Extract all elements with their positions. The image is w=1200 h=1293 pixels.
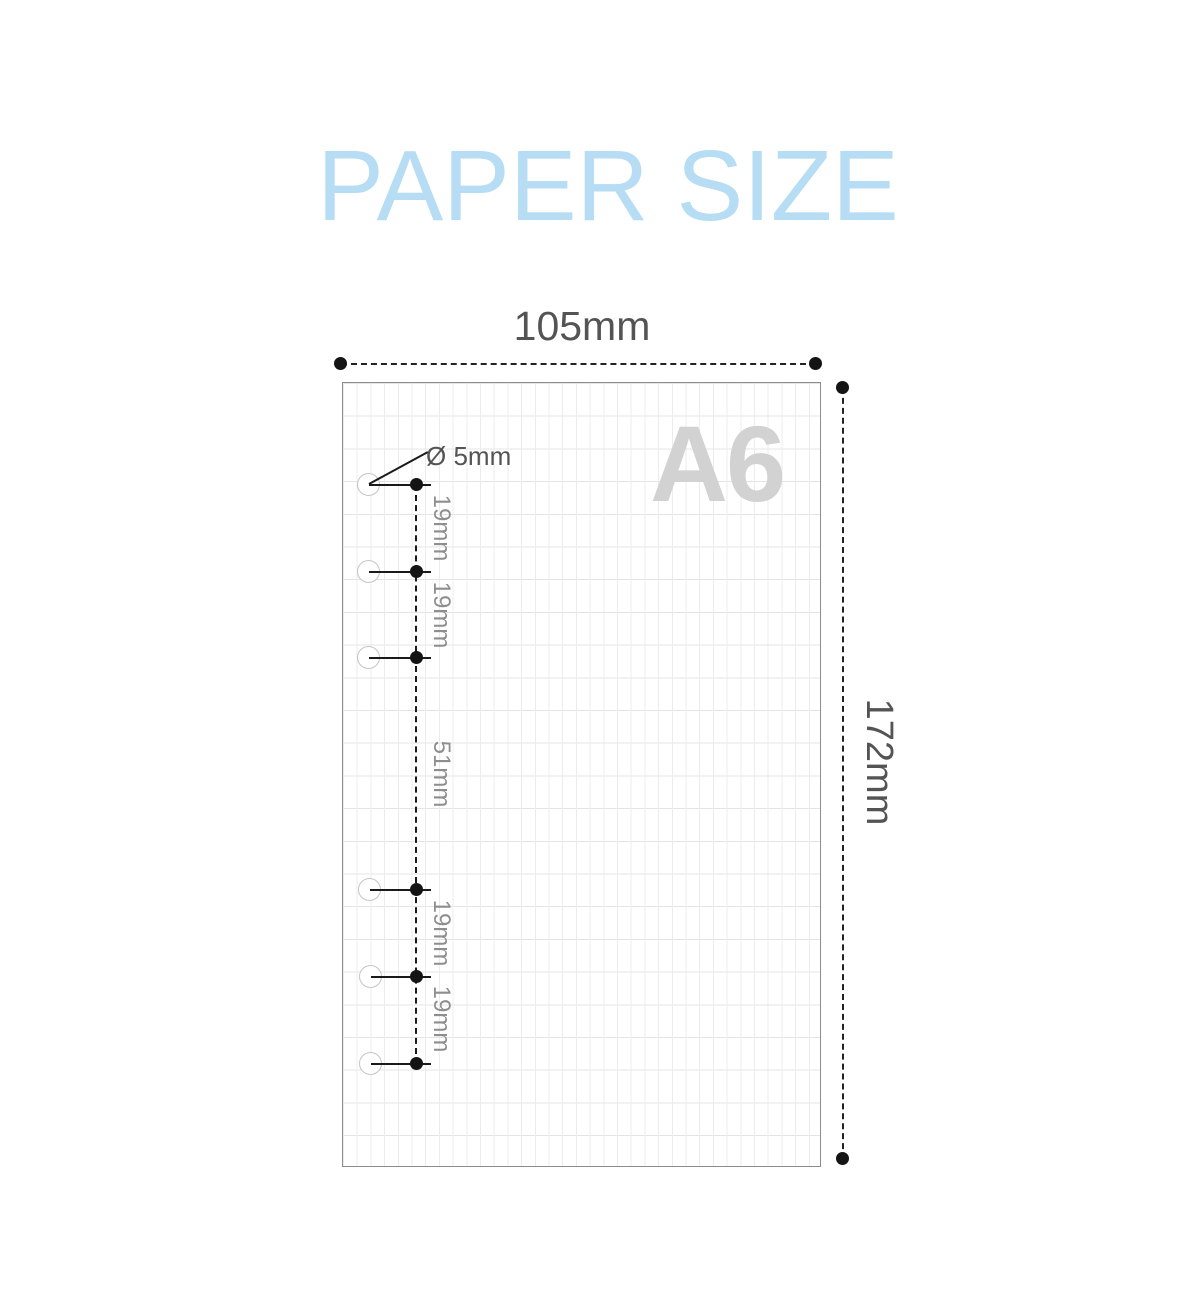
hole-marker-dot-5 xyxy=(410,970,423,983)
height-dimension-end-dot xyxy=(836,1152,849,1165)
width-dimension-line xyxy=(341,363,816,365)
height-dimension-line xyxy=(842,388,844,1159)
hole-marker-dot-3 xyxy=(410,651,423,664)
width-dimension-end-dot xyxy=(809,357,822,370)
hole-marker-dot-1 xyxy=(410,478,423,491)
page-title: PAPER SIZE xyxy=(8,136,1200,236)
paper-size-infographic: PAPER SIZE 105mm A6 172mm Ø 5mm 19mm 19m… xyxy=(0,0,1200,1293)
paper-format-watermark: A6 xyxy=(650,410,784,518)
width-dimension-start-dot xyxy=(334,357,347,370)
hole-spacing-label-2: 19mm xyxy=(426,545,456,685)
hole-marker-dot-4 xyxy=(410,883,423,896)
hole-marker-dot-6 xyxy=(410,1057,423,1070)
hole-spacing-label-5: 19mm xyxy=(426,949,456,1089)
hole-marker-dot-2 xyxy=(410,565,423,578)
height-dimension-label: 172mm xyxy=(860,662,900,862)
height-dimension-start-dot xyxy=(836,381,849,394)
hole-spacing-label-3: 51mm xyxy=(426,704,456,844)
width-dimension-label: 105mm xyxy=(482,303,682,350)
